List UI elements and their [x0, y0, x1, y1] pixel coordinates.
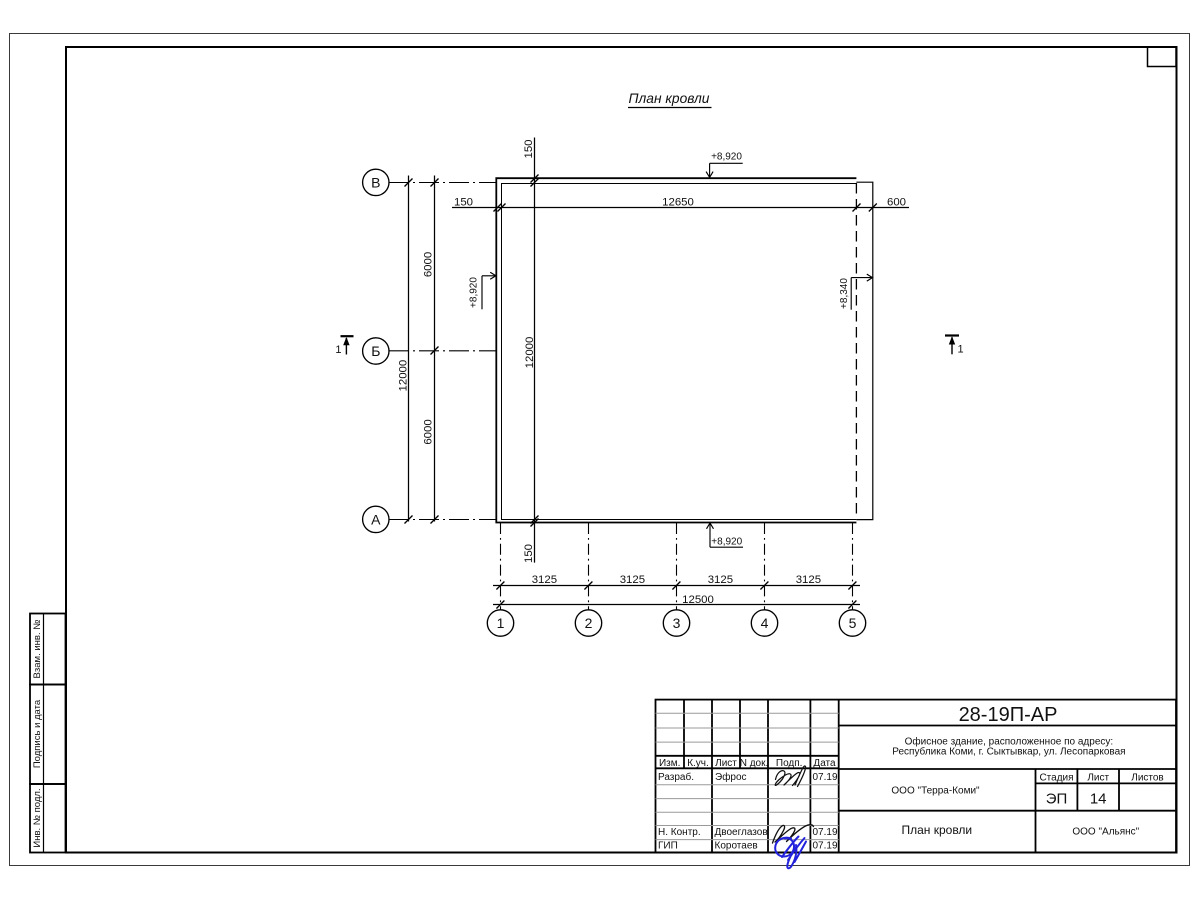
svg-text:3125: 3125	[532, 574, 557, 586]
svg-text:А: А	[371, 511, 381, 527]
svg-text:Стадия: Стадия	[1039, 773, 1073, 784]
svg-text:Эфрос: Эфрос	[715, 771, 747, 783]
svg-text:3125: 3125	[796, 574, 821, 586]
svg-text:1: 1	[335, 344, 341, 356]
svg-text:07.19: 07.19	[813, 841, 838, 852]
svg-text:3: 3	[673, 615, 681, 631]
svg-text:6000: 6000	[422, 252, 434, 277]
svg-text:Инв. № подл.: Инв. № подл.	[32, 788, 43, 847]
svg-text:07.19: 07.19	[813, 827, 838, 838]
svg-text:Республика Коми, г. Сыктывкар,: Республика Коми, г. Сыктывкар, ул. Лесоп…	[892, 746, 1125, 758]
svg-text:+8,920: +8,920	[469, 277, 480, 308]
svg-text:ГИП: ГИП	[658, 841, 678, 852]
svg-text:Н. Контр.: Н. Контр.	[658, 827, 701, 838]
svg-text:ООО "Альянс": ООО "Альянс"	[1072, 827, 1139, 838]
svg-text:В: В	[371, 174, 380, 190]
svg-text:Коротаев: Коротаев	[715, 841, 758, 852]
svg-text:Листов: Листов	[1131, 773, 1164, 784]
svg-text:+8,340: +8,340	[839, 278, 850, 309]
svg-text:28-19П-АР: 28-19П-АР	[959, 704, 1058, 726]
svg-text:5: 5	[849, 615, 857, 631]
svg-text:600: 600	[887, 197, 906, 209]
svg-text:1: 1	[497, 615, 505, 631]
svg-text:3125: 3125	[708, 574, 733, 586]
svg-text:N док.: N док.	[740, 758, 769, 769]
svg-text:150: 150	[523, 544, 535, 563]
svg-text:12500: 12500	[682, 594, 714, 606]
svg-text:14: 14	[1090, 790, 1107, 807]
svg-text:Двоеглазов: Двоеглазов	[715, 827, 768, 838]
svg-text:Лист: Лист	[715, 758, 737, 769]
svg-text:12650: 12650	[662, 197, 694, 209]
svg-text:Подп.: Подп.	[776, 758, 803, 769]
svg-text:2: 2	[585, 615, 593, 631]
svg-text:К.уч.: К.уч.	[687, 758, 709, 769]
svg-text:ООО "Терра-Коми": ООО "Терра-Коми"	[891, 786, 980, 797]
svg-text:12000: 12000	[524, 337, 536, 369]
svg-text:Разраб.: Разраб.	[658, 771, 694, 783]
svg-text:3125: 3125	[620, 574, 645, 586]
svg-text:Лист: Лист	[1087, 773, 1109, 784]
svg-text:12000: 12000	[398, 360, 410, 392]
svg-text:+8,920: +8,920	[711, 152, 742, 163]
svg-text:07.19: 07.19	[813, 772, 838, 783]
svg-text:Взам. инв. №: Взам. инв. №	[32, 620, 43, 679]
svg-text:Дата: Дата	[813, 758, 836, 769]
svg-text:Подпись и дата: Подпись и дата	[32, 699, 43, 768]
svg-text:1: 1	[958, 344, 964, 356]
svg-text:ЭП: ЭП	[1046, 790, 1068, 807]
svg-text:+8,920: +8,920	[711, 536, 742, 547]
svg-text:Б: Б	[371, 343, 380, 359]
svg-text:План кровли: План кровли	[629, 91, 710, 106]
svg-text:150: 150	[523, 139, 535, 158]
svg-text:4: 4	[761, 615, 769, 631]
svg-text:Изм.: Изм.	[659, 758, 680, 769]
svg-text:6000: 6000	[422, 419, 434, 444]
svg-text:План кровли: План кровли	[901, 823, 972, 837]
svg-text:150: 150	[454, 197, 473, 209]
